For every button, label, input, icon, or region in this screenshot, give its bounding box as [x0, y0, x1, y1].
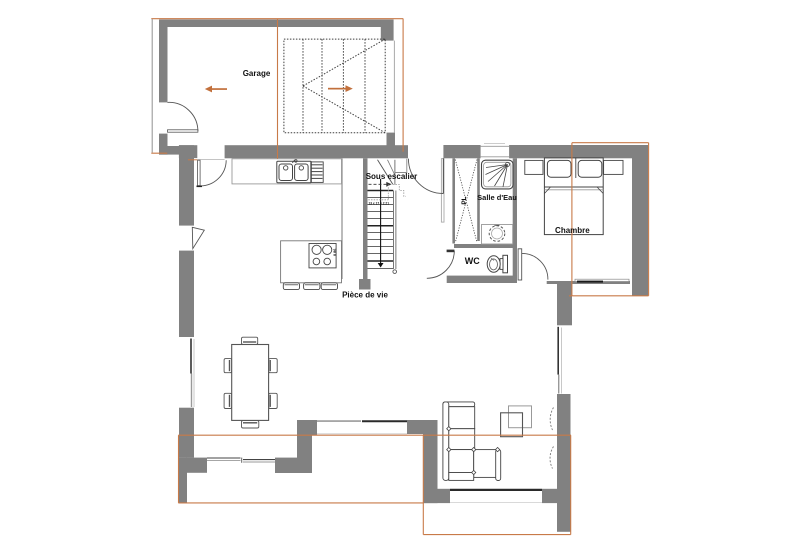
svg-text:Sous escalier: Sous escalier — [366, 172, 418, 181]
svg-text:13 x 17 = 2.21: 13 x 17 = 2.21 — [369, 202, 390, 206]
svg-text:0 86: 0 86 — [333, 249, 337, 256]
svg-text:PL: PL — [461, 196, 468, 204]
svg-text:Salle d'Eau: Salle d'Eau — [477, 193, 517, 202]
svg-text:WC: WC — [465, 256, 480, 266]
svg-text:Pièce de vie: Pièce de vie — [342, 291, 388, 300]
svg-text:Garage: Garage — [243, 69, 271, 78]
svg-text:Chambre: Chambre — [555, 226, 590, 235]
